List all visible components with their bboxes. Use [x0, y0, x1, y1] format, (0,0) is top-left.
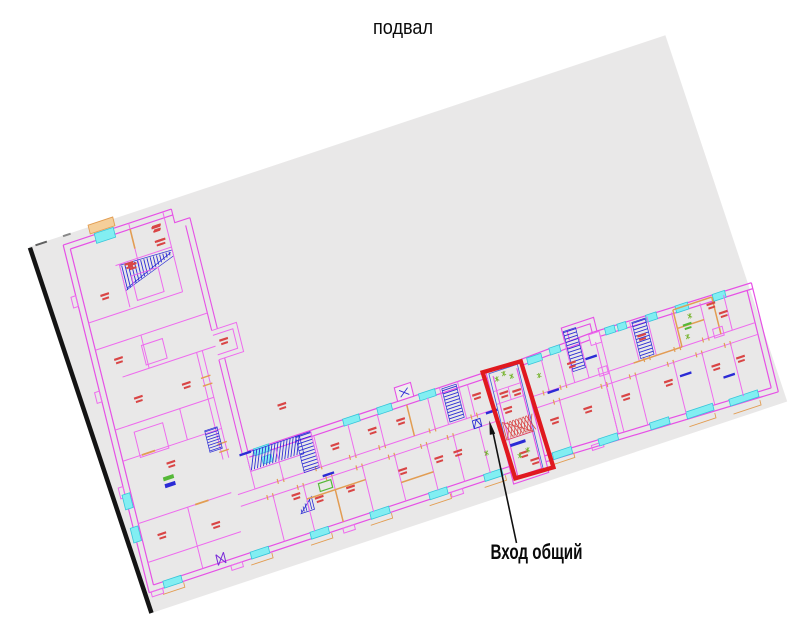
- svg-text:подвал: подвал: [373, 17, 433, 39]
- svg-text:Вход общий: Вход общий: [491, 541, 583, 564]
